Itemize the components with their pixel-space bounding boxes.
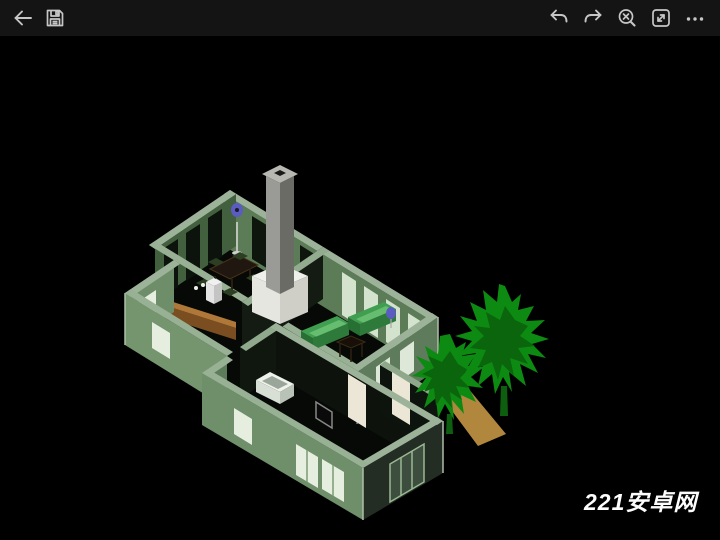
chimney — [262, 165, 298, 294]
save-button[interactable] — [42, 5, 68, 31]
back-button[interactable] — [10, 5, 36, 31]
3d-viewport[interactable]: 221安卓网 — [0, 36, 720, 540]
watermark-text: 221安卓网 — [584, 483, 697, 517]
toolbar-right-group — [546, 5, 708, 31]
redo-button[interactable] — [580, 5, 606, 31]
toolbar — [0, 0, 720, 36]
fit-to-screen-button[interactable] — [648, 5, 674, 31]
ellipsis-icon — [683, 6, 707, 30]
refrigerator — [206, 278, 222, 304]
zoom-extents-button[interactable] — [614, 5, 640, 31]
save-floppy-icon — [43, 6, 67, 30]
zoom-extents-icon — [615, 6, 639, 30]
undo-button[interactable] — [546, 5, 572, 31]
more-options-button[interactable] — [682, 5, 708, 31]
undo-icon — [547, 6, 571, 30]
3d-house-model — [0, 36, 720, 540]
cad-viewer-app: 221安卓网 — [0, 0, 720, 540]
back-arrow-icon — [11, 6, 35, 30]
fit-to-screen-icon — [649, 6, 673, 30]
redo-icon — [581, 6, 605, 30]
